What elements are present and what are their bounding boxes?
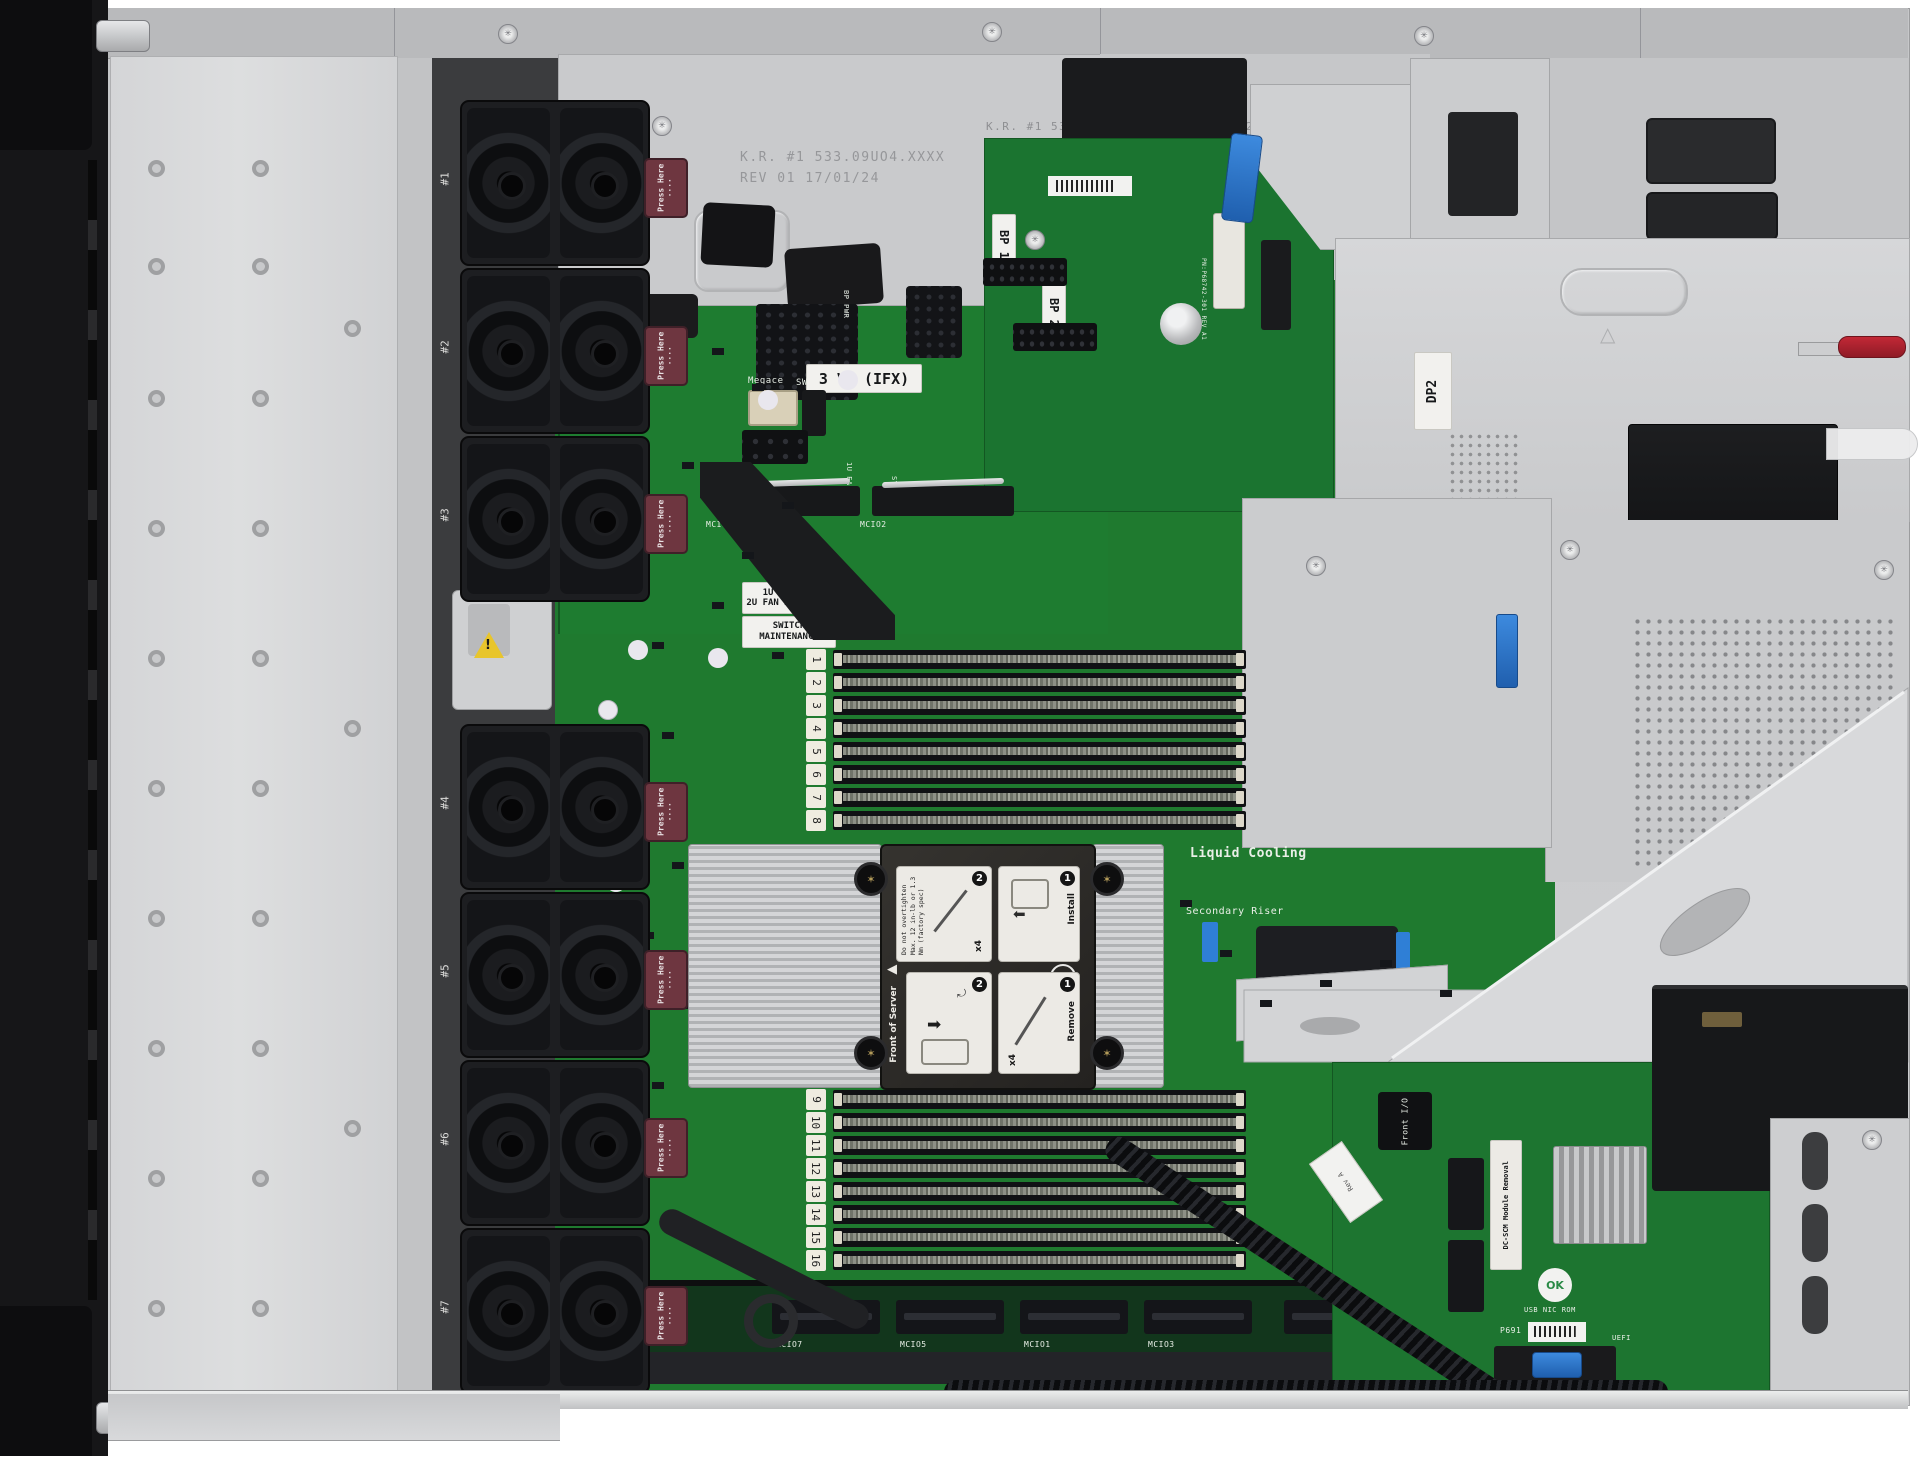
mid-mcio-connector	[872, 486, 1014, 516]
fan-release-press-tab: Press Here····	[644, 494, 688, 554]
ok-text: OK	[1546, 1279, 1564, 1292]
install-step1-card: 1 Install ⬅	[998, 866, 1080, 962]
dimm-slot-number: 15	[806, 1227, 826, 1248]
fan-rotor	[467, 1236, 550, 1386]
torque-warning: Do not overtighten Max. 12 in-lb or 1.3 …	[901, 873, 925, 955]
dimm-row: 3	[806, 696, 1246, 715]
chassis-bottom-left	[108, 1394, 560, 1441]
mcio-connector	[1020, 1300, 1128, 1334]
fan-number-label: #7	[439, 1288, 452, 1314]
install-text: Install	[1067, 893, 1077, 925]
dimm-slot-number: 8	[806, 810, 826, 831]
fan-release-press-tab: Press Here····	[644, 158, 688, 218]
dimm-row: 10	[806, 1113, 1246, 1132]
fan-rotor	[560, 1236, 643, 1386]
dimm-slot-number: 1	[806, 649, 826, 670]
cage-emboss-mark	[1702, 1012, 1742, 1027]
dcscm-label: DC-SCM Module Removal	[1490, 1140, 1522, 1270]
dual-rotor-fan	[460, 724, 650, 890]
fan2-line1: 1U	[763, 588, 774, 598]
install-step2-card: 2 Do not overtighten Max. 12 in-lb or 1.…	[896, 866, 992, 962]
press-here-text: Press Here····	[657, 164, 675, 212]
m2-socket	[1448, 1158, 1484, 1230]
cage-latch-blue	[1496, 614, 1518, 688]
dimm-row: 11	[806, 1136, 1246, 1155]
dimm-slot-number: 10	[806, 1112, 826, 1133]
fan-module: #7 Press Here····	[430, 1228, 692, 1390]
mcio-connector-block: MCIO3	[1144, 1300, 1252, 1334]
sw-silk: SW	[796, 378, 808, 388]
press-here-text: Press Here····	[657, 1292, 675, 1340]
fan-number-label: #3	[439, 496, 452, 522]
dimm-module	[833, 742, 1246, 761]
press-here-text: Press Here····	[657, 788, 675, 836]
warning-line: Nm (factory spec)	[918, 873, 925, 955]
dimm-module	[833, 673, 1246, 692]
step-badge: 2	[972, 871, 987, 886]
dual-rotor-fan	[460, 268, 650, 434]
dimm-module	[833, 1090, 1246, 1109]
fan-rotor	[560, 1068, 643, 1218]
dual-rotor-fan	[460, 1060, 650, 1226]
fan-number-label: #6	[439, 1120, 452, 1146]
mcio-label: MCIO5	[900, 1340, 927, 1349]
heatsink-screw-post: ✶	[854, 862, 888, 896]
fan-rotor	[560, 732, 643, 882]
front-triangle-icon: ◀	[887, 962, 897, 977]
beige-connector	[748, 390, 798, 426]
dimm-module	[833, 788, 1246, 807]
fan-module: #4 Press Here····	[430, 724, 692, 886]
dimm-module	[833, 650, 1246, 669]
fan-rotor	[467, 444, 550, 594]
bracket-slot	[1802, 1132, 1828, 1190]
dimm-slot-number: 14	[806, 1204, 826, 1225]
fan-release-press-tab: Press Here····	[644, 782, 688, 842]
ok-badge: OK	[1538, 1268, 1572, 1302]
dimm-slot-number: 12	[806, 1158, 826, 1179]
uefi-silk: UEFI	[1612, 1334, 1631, 1342]
warning-line: Do not overtighten	[901, 873, 908, 955]
chassis-screw: ✳	[498, 24, 518, 44]
dimm-slot-number: 2	[806, 672, 826, 693]
dual-rotor-fan	[460, 892, 650, 1058]
megace-silk: Megace	[748, 376, 784, 386]
dimm-slot-number: 16	[806, 1250, 826, 1271]
fan-column: #1 Press Here···· #2	[430, 96, 692, 1402]
fan-rotor	[560, 900, 643, 1050]
rotate-arrow-icon: ⤾	[957, 987, 966, 1001]
dimm-row: 6	[806, 765, 1246, 784]
cpu-heatsink-fins-left	[688, 844, 882, 1088]
rom-silk: USB NIC ROM	[1524, 1306, 1576, 1314]
dimm-row: 15	[806, 1228, 1246, 1247]
screw-count: x4	[1008, 1054, 1018, 1066]
dimm-bank-upper: 1 2 3 4 5 6	[806, 650, 1246, 830]
fan-rotor	[467, 276, 550, 426]
dimm-slot-number: 6	[806, 764, 826, 785]
warning-line: Max. 12 in-lb or 1.3	[910, 873, 917, 955]
dimm-module	[833, 696, 1246, 715]
fan-rotor	[467, 732, 550, 882]
dimm-row: 2	[806, 673, 1246, 692]
remove-step1-card: 1 Remove x4	[998, 972, 1080, 1074]
dimm-slot-number: 3	[806, 695, 826, 716]
fan-release-press-tab: Press Here····	[644, 950, 688, 1010]
dimm-module	[833, 1159, 1246, 1178]
front-io-connector: Front I/O	[1378, 1092, 1432, 1150]
step-badge: 1	[1060, 871, 1075, 886]
vr-label-text: 3 VR (IFX)	[819, 370, 909, 388]
mcio-connector-block: MCIO5	[896, 1300, 1004, 1334]
dimm-slot-number: 13	[806, 1181, 826, 1202]
mid-mcio-label: MCIO2	[860, 520, 887, 529]
cable-guide-ring	[744, 1294, 798, 1348]
io-pn-silk: P691	[1500, 1326, 1521, 1335]
fan-release-press-tab: Press Here····	[644, 1118, 688, 1178]
dcscm-text: DC-SCM Module Removal	[1502, 1161, 1510, 1250]
fan-release-press-tab: Press Here····	[644, 1286, 688, 1346]
fan-module: #3 Press Here····	[430, 436, 692, 598]
dimm-module	[833, 765, 1246, 784]
press-here-text: Press Here····	[657, 332, 675, 380]
fan-number-label: #2	[439, 328, 452, 354]
press-here-text: Press Here····	[657, 956, 675, 1004]
dimm-row: 16	[806, 1251, 1246, 1270]
fan-rotor	[467, 108, 550, 258]
chassis-screw: ✳	[652, 116, 672, 136]
dimm-row: 5	[806, 742, 1246, 761]
dual-rotor-fan	[460, 1228, 650, 1394]
remove-arrow-icon: ➡	[927, 1015, 941, 1035]
fan-rotor	[467, 1068, 550, 1218]
heatsink-screw-post: ✶	[854, 1036, 888, 1070]
module-diagram	[921, 1039, 969, 1065]
screwdriver-diagram	[933, 890, 967, 933]
mcio-connector	[896, 1300, 1004, 1334]
dimm-slot-number: 11	[806, 1135, 826, 1156]
remove-text: Remove	[1067, 1001, 1077, 1042]
bracket-slot	[1802, 1204, 1828, 1262]
module-diagram	[1011, 879, 1049, 909]
front-of-server-text: Front of Server	[889, 986, 899, 1063]
screw-count: x4	[974, 940, 984, 952]
dual-rotor-fan	[460, 436, 650, 602]
dimm-module	[833, 1251, 1246, 1270]
bp-pwr-silk: BP PWR	[842, 290, 850, 318]
chassis-screw: ✳	[982, 22, 1002, 42]
fan-module: #5 Press Here····	[430, 892, 692, 1054]
fan-rotor	[560, 444, 643, 594]
dual-rotor-fan	[460, 100, 650, 266]
bracket-slot	[1802, 1276, 1828, 1334]
remove-step2-card: 2 ➡ ⤾	[906, 972, 992, 1074]
dimm-module	[833, 1113, 1246, 1132]
mcio-connector-block: MCIO1	[1020, 1300, 1128, 1334]
fan-rotor	[560, 276, 643, 426]
screwdriver-diagram	[1014, 996, 1046, 1045]
barcode-label	[1528, 1322, 1586, 1342]
press-here-text: Press Here····	[657, 1124, 675, 1172]
mcio-connector	[1144, 1300, 1252, 1334]
dimm-row: 1	[806, 650, 1246, 669]
pwm-header	[742, 430, 808, 464]
mcio-label: MCIO1	[1024, 1340, 1051, 1349]
io-heatsink-fins	[1553, 1146, 1647, 1244]
fan-module: #6 Press Here····	[430, 1060, 692, 1222]
dimm-row: 4	[806, 719, 1246, 738]
fan-number-label: #5	[439, 952, 452, 978]
heatsink-screw-post: ✶	[1090, 1036, 1124, 1070]
dimm-module	[833, 1228, 1246, 1247]
fan-number-label: #4	[439, 784, 452, 810]
cpu-heatsink-label-plate: 1 Install ⬅ 2 Do not overtighten Max. 12…	[880, 844, 1096, 1090]
fan-module: #2 Press Here····	[430, 268, 692, 430]
dimm-module	[833, 811, 1246, 830]
step-badge: 1	[1060, 977, 1075, 992]
dimm-row: 8	[806, 811, 1246, 830]
dimm-module	[833, 719, 1246, 738]
dimm-slot-number: 7	[806, 787, 826, 808]
m2-socket	[1448, 1240, 1484, 1312]
dimm-row: 9	[806, 1090, 1246, 1109]
cable-flag-text: Rev A	[1337, 1171, 1356, 1193]
front-io-text: Front I/O	[1400, 1097, 1409, 1145]
mcio-label: MCIO3	[1148, 1340, 1175, 1349]
dimm-slot-number: 9	[806, 1089, 826, 1110]
fan-release-press-tab: Press Here····	[644, 326, 688, 386]
cpu-power-socket	[906, 286, 962, 358]
fan-rotor	[560, 108, 643, 258]
heatsink-screw-post: ✶	[1090, 862, 1124, 896]
dimm-row: 7	[806, 788, 1246, 807]
dimm-row: 14	[806, 1205, 1246, 1224]
fan-number-label: #1	[439, 160, 452, 186]
dimm-slot-number: 4	[806, 718, 826, 739]
io-blue-latch	[1532, 1352, 1582, 1378]
right-wall-bracket	[1770, 1118, 1910, 1406]
dimm-slot-number: 5	[806, 741, 826, 762]
dimm-module	[833, 1136, 1246, 1155]
vr-label: 3 VR (IFX)	[806, 364, 922, 393]
torx-screw: ✳	[1862, 1130, 1882, 1150]
press-here-text: Press Here····	[657, 500, 675, 548]
server-interior-photo: K.R. #1 533.09UO4.XXXX REV 01 17/01/24 K…	[0, 0, 1920, 1474]
fan-rotor	[467, 900, 550, 1050]
step-badge: 2	[972, 977, 987, 992]
chassis-screw: ✳	[1414, 26, 1434, 46]
